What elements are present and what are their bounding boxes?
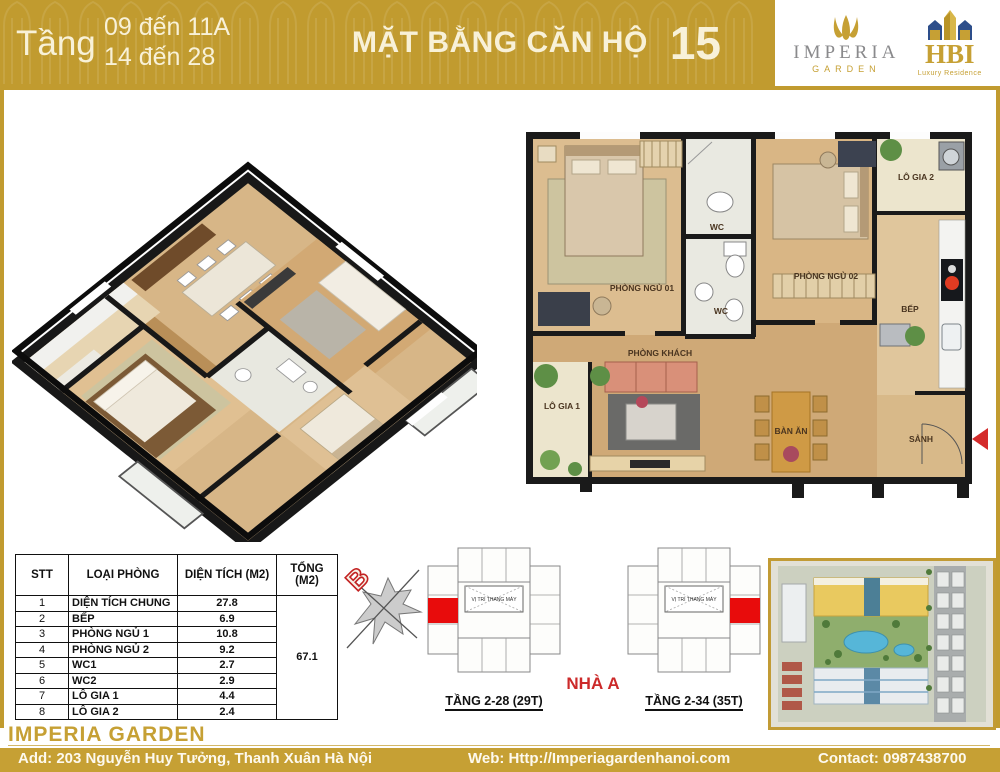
room-label-wc-bottom: WC — [714, 306, 728, 316]
room-label-loggia1: LÔ GIA 1 — [544, 400, 580, 411]
tulip-icon — [829, 13, 863, 41]
north-compass: B — [333, 550, 433, 667]
cell-total: 67.1 — [277, 596, 338, 720]
cell-room: LÔ GIA 2 — [69, 704, 178, 720]
room-label-wc-top: WC — [710, 222, 724, 232]
title-wrap: MẶT BẰNG CĂN HỘ 15 — [352, 0, 721, 86]
unit-number: 15 — [670, 16, 721, 70]
cell-stt: 1 — [16, 596, 69, 612]
room-label-hall: SẢNH — [909, 433, 933, 444]
website-text: Web: Http://Imperiagardenhanoi.com — [468, 750, 730, 767]
room-label-living: PHÒNG KHÁCH — [628, 347, 692, 358]
col-header-room: LOẠI PHÒNG — [69, 555, 178, 596]
cell-area: 4.4 — [178, 689, 277, 705]
compass-north-label: B — [340, 561, 375, 596]
contact-text: Contact: 0987438700 — [818, 750, 966, 767]
col-header-total: TỔNG (M2) — [277, 555, 338, 596]
room-label-loggia2: LÔ GIA 2 — [898, 171, 934, 182]
key-plan-left: VỊ TRÍ THANG MÁY — [427, 546, 561, 679]
imperia-logo-name: IMPERIA — [793, 43, 899, 62]
elevator-label: VỊ TRÍ THANG MÁY — [671, 596, 717, 603]
cell-area: 9.2 — [178, 642, 277, 658]
header: Tầng 09 đến 11A 14 đến 28 MẶT BẰNG CĂN H… — [0, 0, 1000, 86]
site-plan — [768, 558, 996, 735]
room-label-bedroom2: PHÒNG NGỦ 02 — [794, 270, 859, 281]
cell-room: PHÒNG NGỦ 2 — [69, 642, 178, 658]
cell-area: 2.9 — [178, 673, 277, 689]
cell-area: 27.8 — [178, 596, 277, 612]
cell-area: 10.8 — [178, 627, 277, 643]
cell-room: DIỆN TÍCH CHUNG — [69, 596, 178, 612]
footer-brand-underline — [8, 745, 990, 746]
elevator-label: VỊ TRÍ THANG MÁY — [471, 596, 517, 603]
address-text: Add: 203 Nguyễn Huy Tưởng, Thanh Xuân Hà… — [18, 750, 372, 767]
area-table: STT LOẠI PHÒNG DIỆN TÍCH (M2) TỔNG (M2) … — [15, 554, 338, 720]
col-header-area: DIỆN TÍCH (M2) — [178, 555, 277, 596]
cell-room: LÔ GIA 1 — [69, 689, 178, 705]
key-plan-right: VỊ TRÍ THANG MÁY — [627, 546, 761, 679]
imperia-logo-sub: GARDEN — [812, 65, 881, 74]
logo-box: IMPERIA GARDEN HBI Luxury Residence — [775, 0, 1000, 86]
cell-stt: 7 — [16, 689, 69, 705]
key-plan-left-caption: TẦNG 2-28 (29T) — [414, 694, 574, 708]
floor-range-line2: 14 đến 28 — [104, 42, 230, 72]
table-header-row: STT LOẠI PHÒNG DIỆN TÍCH (M2) TỔNG (M2) — [16, 555, 338, 596]
building-label: NHÀ A — [548, 674, 638, 694]
buildings-icon — [922, 10, 978, 40]
imperia-garden-logo: IMPERIA GARDEN — [793, 13, 899, 74]
cell-stt: 6 — [16, 673, 69, 689]
cell-room: BẾP — [69, 611, 178, 627]
cell-stt: 8 — [16, 704, 69, 720]
floor-plan-3d — [12, 90, 477, 547]
floor-plan-2d: PHÒNG NGỦ 01 WC WC PHÒNG NGỦ 02 LÔ GIA 2… — [520, 124, 995, 521]
table-row: 1 DIỆN TÍCH CHUNG 27.8 67.1 — [16, 596, 338, 612]
cell-stt: 5 — [16, 658, 69, 674]
hbi-logo-name: HBI — [925, 41, 975, 68]
room-label-bedroom1: PHÒNG NGỦ 01 — [610, 282, 675, 293]
unit-highlight — [730, 598, 760, 623]
cell-stt: 4 — [16, 642, 69, 658]
cell-area: 6.9 — [178, 611, 277, 627]
hbi-logo-sub: Luxury Residence — [918, 70, 982, 77]
cell-stt: 3 — [16, 627, 69, 643]
cell-room: WC2 — [69, 673, 178, 689]
room-label-kitchen: BẾP — [901, 304, 919, 314]
floor-label: Tầng — [16, 24, 96, 64]
hbi-logo: HBI Luxury Residence — [918, 10, 982, 77]
floor-range: 09 đến 11A 14 đến 28 — [104, 12, 230, 72]
unit-highlight — [428, 598, 458, 623]
floor-range-line1: 09 đến 11A — [104, 12, 230, 42]
footer-brand: IMPERIA GARDEN — [8, 723, 206, 747]
cell-area: 2.7 — [178, 658, 277, 674]
entrance-arrow-icon — [972, 428, 988, 450]
key-plan-right-caption: TẦNG 2-34 (35T) — [614, 694, 774, 708]
footer-bar: Add: 203 Nguyễn Huy Tưởng, Thanh Xuân Hà… — [0, 748, 1000, 772]
cell-stt: 2 — [16, 611, 69, 627]
cell-area: 2.4 — [178, 704, 277, 720]
cell-room: WC1 — [69, 658, 178, 674]
page-title: MẶT BẰNG CĂN HỘ — [352, 26, 648, 60]
col-header-stt: STT — [16, 555, 69, 596]
cell-room: PHÒNG NGỦ 1 — [69, 627, 178, 643]
room-label-dining: BÀN ĂN — [774, 426, 807, 436]
